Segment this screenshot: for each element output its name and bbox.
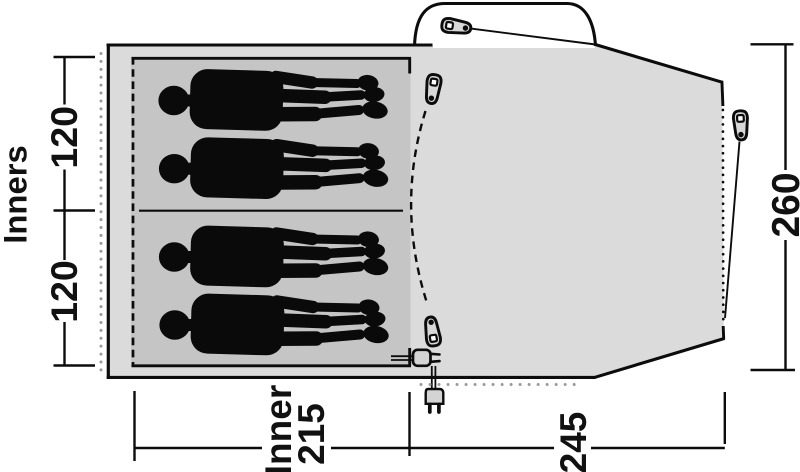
svg-text:120: 120 xyxy=(43,260,85,323)
svg-text:Inners: Inners xyxy=(0,145,34,243)
svg-text:215: 215 xyxy=(291,403,332,465)
svg-text:120: 120 xyxy=(43,106,85,169)
svg-text:245: 245 xyxy=(553,412,594,472)
svg-text:260: 260 xyxy=(765,172,800,237)
